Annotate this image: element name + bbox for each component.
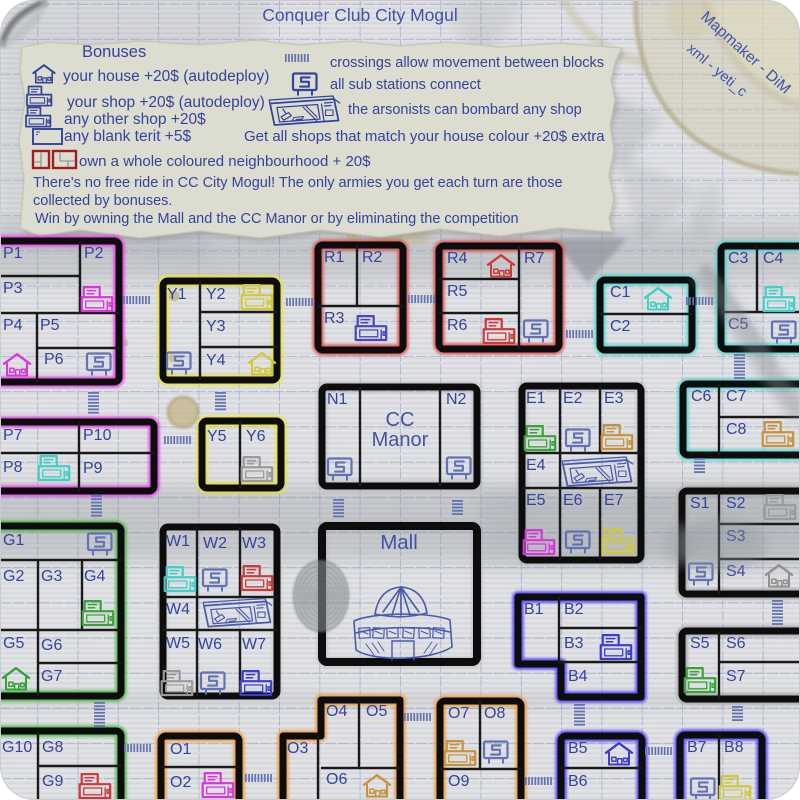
svg-text:Conquer Club City Mogul: Conquer Club City Mogul bbox=[262, 5, 458, 25]
svg-text:P10: P10 bbox=[83, 427, 112, 444]
svg-text:C4: C4 bbox=[763, 250, 784, 267]
svg-text:E1: E1 bbox=[526, 390, 546, 407]
svg-text:C6: C6 bbox=[691, 388, 712, 405]
svg-text:S2: S2 bbox=[726, 495, 746, 512]
svg-text:O6: O6 bbox=[326, 771, 347, 788]
svg-text:E4: E4 bbox=[526, 457, 546, 474]
svg-text:Y6: Y6 bbox=[246, 428, 266, 445]
svg-text:Manor: Manor bbox=[372, 429, 429, 451]
svg-text:B2: B2 bbox=[564, 601, 584, 618]
svg-text:C3: C3 bbox=[728, 250, 749, 267]
svg-text:R5: R5 bbox=[447, 283, 468, 300]
svg-text:W7: W7 bbox=[242, 636, 266, 653]
svg-text:B5: B5 bbox=[568, 740, 588, 757]
svg-text:P3: P3 bbox=[3, 280, 23, 297]
svg-text:O3: O3 bbox=[287, 740, 308, 757]
svg-text:your shop +20$ (autodeploy): your shop +20$ (autodeploy) bbox=[67, 94, 265, 111]
svg-text:N1: N1 bbox=[327, 391, 348, 408]
svg-text:B4: B4 bbox=[568, 668, 588, 685]
svg-text:S7: S7 bbox=[726, 668, 746, 685]
svg-text:R3: R3 bbox=[324, 310, 345, 327]
svg-text:S6: S6 bbox=[726, 635, 746, 652]
svg-text:O4: O4 bbox=[326, 703, 347, 720]
svg-text:P5: P5 bbox=[40, 317, 60, 334]
svg-text:S1: S1 bbox=[690, 495, 710, 512]
svg-text:G3: G3 bbox=[41, 568, 62, 585]
svg-text:Get all shops that match your: Get all shops that match your house colo… bbox=[244, 128, 605, 145]
svg-text:O2: O2 bbox=[170, 774, 191, 791]
svg-text:Y3: Y3 bbox=[206, 318, 226, 335]
svg-text:the arsonists can bombard any: the arsonists can bombard any shop bbox=[348, 102, 582, 118]
svg-text:R6: R6 bbox=[447, 317, 468, 334]
svg-text:O8: O8 bbox=[484, 705, 505, 722]
svg-text:crossings allow movement betwe: crossings allow movement between blocks bbox=[330, 55, 604, 71]
svg-text:your house +20$ (autodeploy): your house +20$ (autodeploy) bbox=[63, 68, 269, 85]
svg-text:E3: E3 bbox=[604, 390, 624, 407]
svg-text:O5: O5 bbox=[366, 703, 387, 720]
svg-text:P6: P6 bbox=[44, 351, 64, 368]
svg-text:P4: P4 bbox=[3, 317, 23, 334]
svg-text:W3: W3 bbox=[242, 535, 266, 552]
svg-text:G4: G4 bbox=[84, 568, 105, 585]
svg-text:B6: B6 bbox=[568, 773, 588, 790]
svg-text:C7: C7 bbox=[726, 388, 747, 405]
svg-text:B8: B8 bbox=[724, 739, 744, 756]
svg-text:N2: N2 bbox=[446, 391, 467, 408]
svg-text:C2: C2 bbox=[610, 318, 631, 335]
svg-text:Y4: Y4 bbox=[206, 352, 226, 369]
svg-text:P1: P1 bbox=[3, 245, 23, 262]
svg-text:G8: G8 bbox=[42, 739, 63, 756]
svg-text:There's no free ride in CC Cit: There's no free ride in CC City Mogul! T… bbox=[33, 175, 563, 191]
svg-text:G9: G9 bbox=[42, 773, 63, 790]
svg-text:W2: W2 bbox=[203, 535, 227, 552]
svg-text:any other shop +20$: any other shop +20$ bbox=[64, 111, 206, 128]
svg-text:G10: G10 bbox=[2, 739, 32, 756]
svg-text:P2: P2 bbox=[84, 245, 104, 262]
svg-text:Bonuses: Bonuses bbox=[82, 43, 146, 61]
svg-text:B1: B1 bbox=[524, 601, 544, 618]
svg-text:C1: C1 bbox=[610, 284, 631, 301]
svg-text:G5: G5 bbox=[3, 635, 24, 652]
svg-text:R4: R4 bbox=[447, 250, 468, 267]
svg-text:W6: W6 bbox=[198, 636, 222, 653]
svg-text:Y2: Y2 bbox=[206, 286, 226, 303]
svg-text:W1: W1 bbox=[166, 533, 190, 550]
svg-text:P9: P9 bbox=[83, 460, 103, 477]
svg-text:P7: P7 bbox=[3, 427, 23, 444]
svg-text:G2: G2 bbox=[3, 568, 24, 585]
svg-text:O7: O7 bbox=[448, 705, 469, 722]
svg-text:Win by owning the Mall and the: Win by owning the Mall and the CC Manor … bbox=[35, 211, 519, 227]
svg-text:R2: R2 bbox=[362, 249, 383, 266]
svg-text:collected by bonuses.: collected by bonuses. bbox=[33, 193, 172, 209]
svg-text:S5: S5 bbox=[690, 635, 710, 652]
svg-text:W5: W5 bbox=[166, 635, 190, 652]
svg-text:E2: E2 bbox=[563, 390, 583, 407]
svg-text:G7: G7 bbox=[41, 668, 62, 685]
svg-text:R1: R1 bbox=[324, 249, 345, 266]
svg-text:O9: O9 bbox=[448, 773, 469, 790]
svg-text:G6: G6 bbox=[41, 637, 62, 654]
svg-text:C8: C8 bbox=[726, 421, 747, 438]
svg-text:Y5: Y5 bbox=[207, 428, 227, 445]
svg-text:O1: O1 bbox=[170, 741, 191, 758]
svg-text:any blank terit +5$: any blank terit +5$ bbox=[64, 128, 191, 145]
svg-text:R7: R7 bbox=[524, 250, 545, 267]
svg-text:all sub stations connect: all sub stations connect bbox=[330, 77, 481, 93]
svg-text:CC: CC bbox=[386, 409, 415, 431]
svg-text:B3: B3 bbox=[564, 635, 584, 652]
svg-text:G1: G1 bbox=[3, 532, 24, 549]
svg-text:W4: W4 bbox=[166, 601, 190, 618]
svg-text:E7: E7 bbox=[604, 492, 624, 509]
svg-text:own a whole coloured neighbour: own a whole coloured neighbourhood + 20$ bbox=[79, 153, 371, 170]
svg-text:Mall: Mall bbox=[380, 531, 418, 554]
svg-text:B7: B7 bbox=[687, 739, 707, 756]
svg-text:E6: E6 bbox=[563, 492, 583, 509]
svg-text:Y1: Y1 bbox=[167, 286, 187, 303]
svg-text:P8: P8 bbox=[3, 459, 23, 476]
svg-text:E5: E5 bbox=[526, 492, 546, 509]
